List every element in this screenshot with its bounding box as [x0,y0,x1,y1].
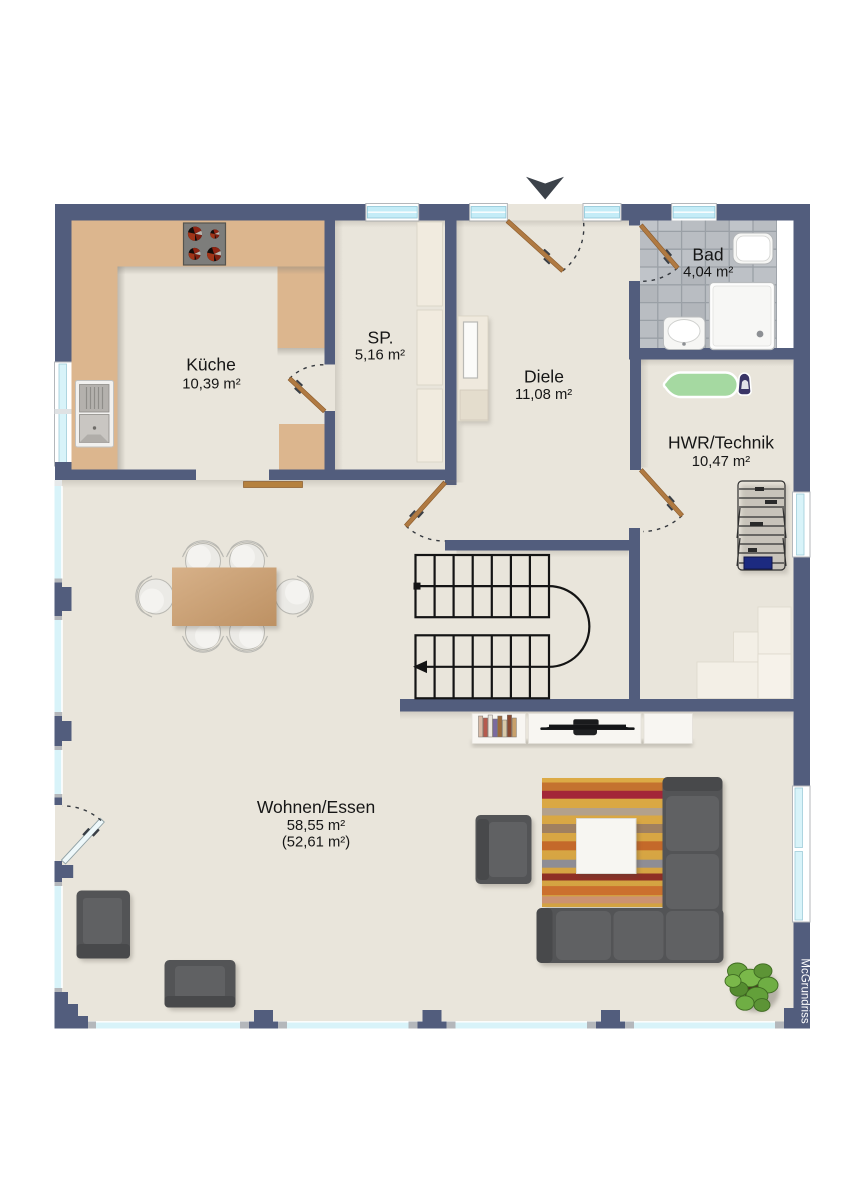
svg-text:SP.: SP. [368,328,394,348]
svg-text:(52,61 m²): (52,61 m²) [282,835,350,851]
svg-text:4,04 m²: 4,04 m² [683,265,733,281]
svg-text:5,16 m²: 5,16 m² [355,348,405,364]
svg-text:58,55 m²: 58,55 m² [287,818,345,834]
svg-text:10,47 m²: 10,47 m² [692,454,750,470]
svg-text:Bad: Bad [692,245,723,265]
svg-text:Wohnen/Essen: Wohnen/Essen [257,797,375,817]
svg-text:HWR/Technik: HWR/Technik [668,433,774,453]
svg-text:Küche: Küche [186,355,236,375]
svg-text:Diele: Diele [524,367,564,387]
svg-text:McGrundriss: McGrundriss [799,958,811,1023]
svg-text:11,08 m²: 11,08 m² [515,387,572,403]
svg-text:10,39 m²: 10,39 m² [182,377,240,393]
